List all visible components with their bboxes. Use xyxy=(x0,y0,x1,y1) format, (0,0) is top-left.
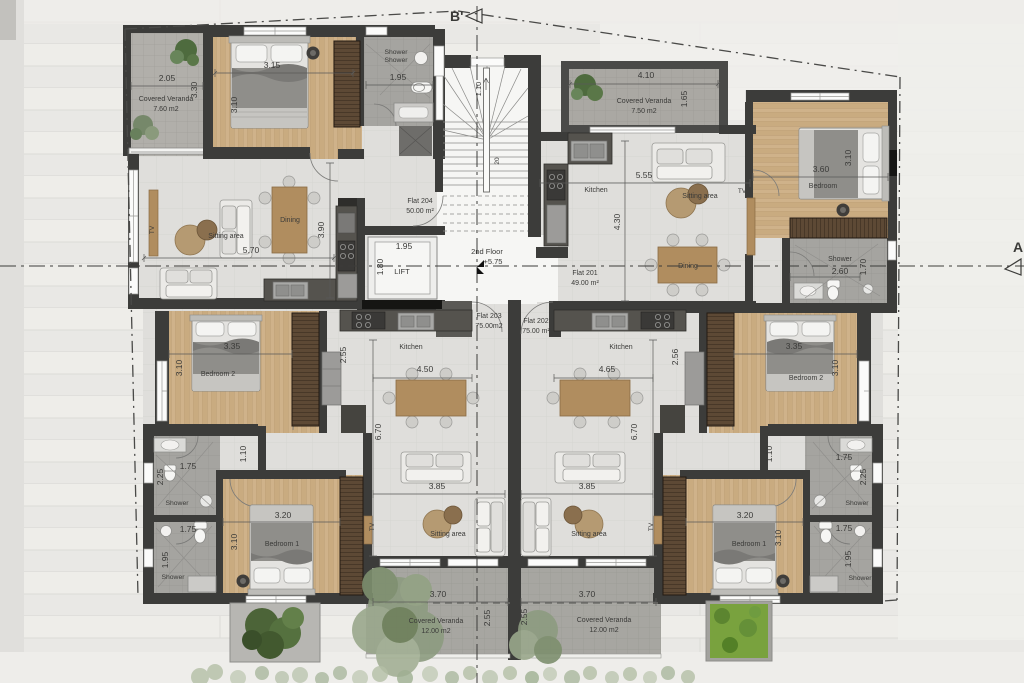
svg-text:75.00 m²: 75.00 m² xyxy=(522,328,550,335)
svg-text:1.10: 1.10 xyxy=(764,445,774,462)
svg-text:Kitchen: Kitchen xyxy=(399,344,422,351)
svg-text:TV: TV xyxy=(149,225,156,234)
svg-text:4.30: 4.30 xyxy=(612,213,622,230)
svg-text:LIFT: LIFT xyxy=(394,267,410,276)
svg-text:Sitting area: Sitting area xyxy=(682,193,718,200)
svg-text:3.10: 3.10 xyxy=(229,96,239,113)
svg-text:2.55: 2.55 xyxy=(482,609,492,626)
svg-text:Shower: Shower xyxy=(161,574,185,581)
svg-text:2.25: 2.25 xyxy=(858,468,868,485)
svg-text:1.80: 1.80 xyxy=(375,258,385,275)
svg-text:4.65: 4.65 xyxy=(599,364,616,374)
svg-text:1.95: 1.95 xyxy=(160,551,170,568)
svg-text:2.60: 2.60 xyxy=(832,266,849,276)
svg-text:Covered Veranda: Covered Veranda xyxy=(577,617,632,624)
svg-text:Shower: Shower xyxy=(845,500,869,507)
svg-text:1.75: 1.75 xyxy=(180,461,197,471)
svg-text:50.00 m²: 50.00 m² xyxy=(406,208,434,215)
svg-text:Flat 202: Flat 202 xyxy=(523,318,548,325)
svg-text:2.25: 2.25 xyxy=(155,468,165,485)
svg-text:75.00m2: 75.00m2 xyxy=(475,323,502,330)
svg-text:Kitchen: Kitchen xyxy=(584,187,607,194)
svg-text:Flat 204: Flat 204 xyxy=(407,198,432,205)
svg-text:12.00 m2: 12.00 m2 xyxy=(589,627,618,634)
svg-text:3.70: 3.70 xyxy=(430,589,447,599)
svg-text:3.20: 3.20 xyxy=(275,510,292,520)
svg-text:Bedroom 1: Bedroom 1 xyxy=(265,541,299,548)
svg-text:3.85: 3.85 xyxy=(579,481,596,491)
svg-text:1.10: 1.10 xyxy=(474,82,483,97)
svg-text:3.15: 3.15 xyxy=(264,60,281,70)
svg-text:7.60 m2: 7.60 m2 xyxy=(153,106,178,113)
svg-text:Sitting area: Sitting area xyxy=(430,531,466,538)
svg-text:Shower: Shower xyxy=(828,256,852,263)
svg-text:Dining: Dining xyxy=(678,263,698,270)
svg-text:1.75: 1.75 xyxy=(836,452,853,462)
svg-text:2.55: 2.55 xyxy=(338,346,348,363)
svg-text:3.60: 3.60 xyxy=(813,164,830,174)
svg-text:Bedroom: Bedroom xyxy=(809,183,838,190)
svg-text:49.00 m²: 49.00 m² xyxy=(571,280,599,287)
svg-text:Bedroom 2: Bedroom 2 xyxy=(789,375,823,382)
svg-text:+5.75: +5.75 xyxy=(484,257,503,266)
svg-text:2nd Floor: 2nd Floor xyxy=(471,247,503,256)
svg-text:3.10: 3.10 xyxy=(773,529,783,546)
svg-text:Covered Veranda: Covered Veranda xyxy=(409,618,464,625)
svg-text:6.70: 6.70 xyxy=(629,423,639,440)
svg-text:20: 20 xyxy=(494,157,501,165)
svg-text:Flat 201: Flat 201 xyxy=(572,270,597,277)
svg-text:4.50: 4.50 xyxy=(417,364,434,374)
svg-text:1.10: 1.10 xyxy=(238,445,248,462)
svg-text:1.95: 1.95 xyxy=(843,550,853,567)
svg-text:Bedroom 1: Bedroom 1 xyxy=(732,541,766,548)
svg-text:A: A xyxy=(1013,239,1023,255)
svg-text:7.50 m2: 7.50 m2 xyxy=(631,108,656,115)
svg-text:TV: TV xyxy=(738,188,747,195)
svg-text:2.05: 2.05 xyxy=(159,73,176,83)
svg-text:Shower: Shower xyxy=(848,575,872,582)
svg-text:1.75: 1.75 xyxy=(836,523,853,533)
svg-text:Shower: Shower xyxy=(384,57,408,64)
svg-text:12.00 m2: 12.00 m2 xyxy=(421,628,450,635)
svg-text:3.35: 3.35 xyxy=(224,341,241,351)
svg-text:6.70: 6.70 xyxy=(373,423,383,440)
svg-text:Dining: Dining xyxy=(280,217,300,224)
svg-text:1.75: 1.75 xyxy=(180,524,197,534)
svg-text:Sitting area: Sitting area xyxy=(208,233,244,240)
svg-text:Shower: Shower xyxy=(384,49,408,56)
svg-text:3.20: 3.20 xyxy=(737,510,754,520)
svg-text:1.95: 1.95 xyxy=(390,72,407,82)
svg-text:3.35: 3.35 xyxy=(786,341,803,351)
svg-text:Sitting area: Sitting area xyxy=(571,531,607,538)
svg-text:1.65: 1.65 xyxy=(679,90,689,107)
svg-text:1.95: 1.95 xyxy=(396,241,413,251)
svg-text:5.70: 5.70 xyxy=(243,245,260,255)
svg-text:3.70: 3.70 xyxy=(579,589,596,599)
svg-text:3.10: 3.10 xyxy=(229,533,239,550)
svg-text:3.10: 3.10 xyxy=(843,149,853,166)
svg-text:Kitchen: Kitchen xyxy=(609,344,632,351)
svg-text:3.10: 3.10 xyxy=(174,359,184,376)
svg-text:2.56: 2.56 xyxy=(670,348,680,365)
svg-text:Covered Veranda: Covered Veranda xyxy=(617,98,672,105)
svg-text:Flat 203: Flat 203 xyxy=(476,313,501,320)
svg-text:1.70: 1.70 xyxy=(858,258,868,275)
svg-text:TV: TV xyxy=(648,522,655,531)
svg-text:3.85: 3.85 xyxy=(429,481,446,491)
svg-text:B': B' xyxy=(450,8,463,24)
svg-text:Bedroom 2: Bedroom 2 xyxy=(201,371,235,378)
svg-text:3.90: 3.90 xyxy=(316,221,326,238)
svg-text:4.10: 4.10 xyxy=(638,70,655,80)
svg-text:TV: TV xyxy=(369,522,376,531)
svg-text:5.55: 5.55 xyxy=(636,170,653,180)
svg-text:Covered Veranda: Covered Veranda xyxy=(139,96,194,103)
svg-text:2.55: 2.55 xyxy=(519,608,529,625)
svg-text:Shower: Shower xyxy=(165,500,189,507)
svg-text:3.10: 3.10 xyxy=(830,359,840,376)
